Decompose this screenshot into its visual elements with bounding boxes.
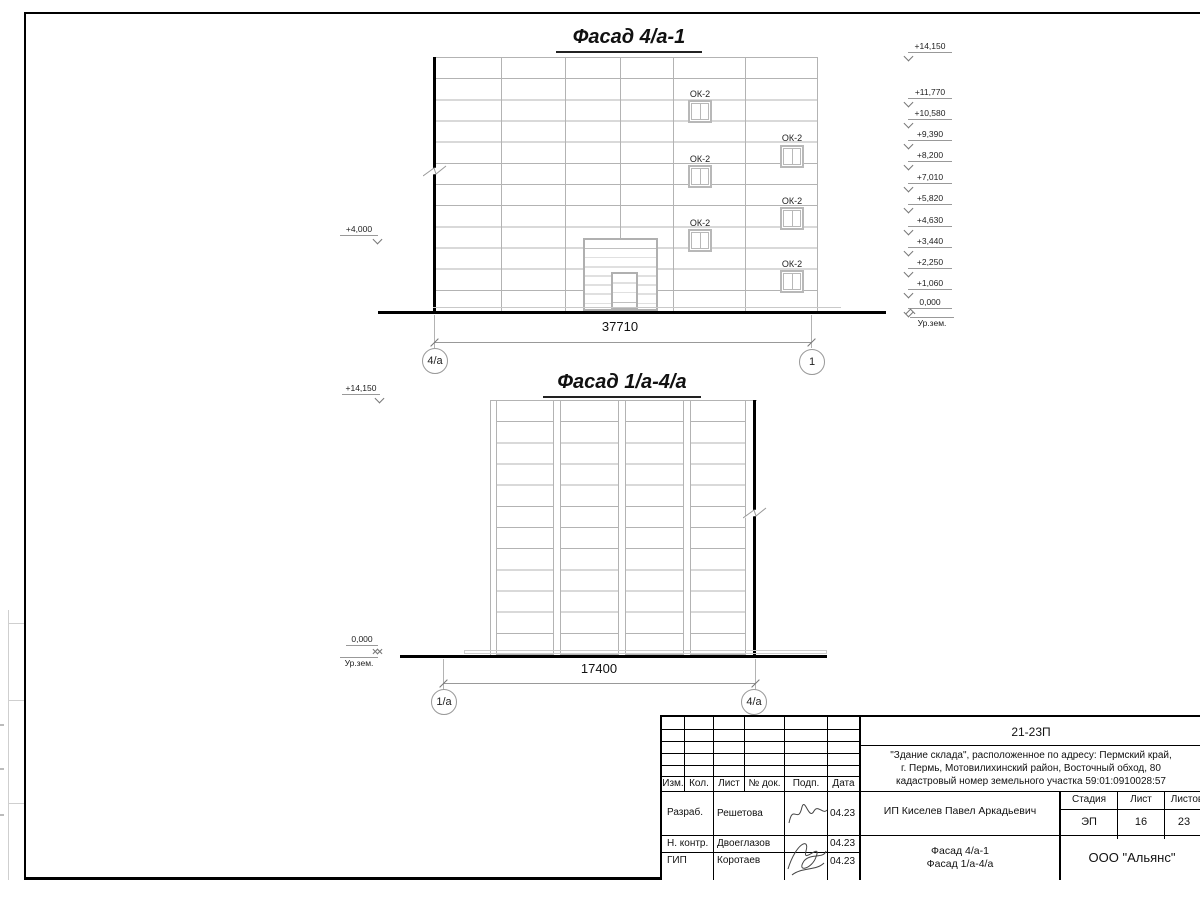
elevation-value: +7,010 (917, 172, 943, 182)
window-ok2 (688, 100, 712, 123)
tb-client: ИП Киселев Павел Аркадьевич (861, 805, 1059, 817)
elevation-tick-icon (904, 140, 914, 150)
wicket-door (611, 272, 638, 309)
dimension-text: 17400 (549, 661, 649, 676)
elevation-mark: 0,000 (346, 634, 378, 646)
elevation-tick-icon (904, 226, 914, 236)
window-mullion (700, 168, 701, 185)
window-mullion (700, 103, 701, 120)
elevation-value: Ур.зем. (918, 318, 947, 328)
elevation-mark: +9,390 (908, 129, 952, 141)
margin-line (8, 700, 24, 701)
window-label: ОК-2 (778, 259, 806, 269)
elevation-mark: +14,150 (908, 41, 952, 53)
extension-line (755, 659, 756, 690)
signature-icon (782, 833, 830, 879)
margin-mark (0, 724, 4, 726)
tb-line (662, 765, 859, 766)
elevation-tick-icon (904, 52, 914, 62)
break-mark-icon (743, 506, 767, 522)
window-label: ОК-2 (778, 196, 806, 206)
elevation-value: +11,770 (915, 87, 945, 97)
facade2-title: Фасад 1/а-4/а (543, 371, 701, 398)
tb-sheet-label: Лист (1118, 794, 1164, 805)
elevation-tick-icon (904, 204, 914, 214)
elevation-mark: +11,770 (908, 87, 952, 99)
tb-sheets-label: Листов (1165, 794, 1200, 805)
axis-bubble: 4/а (422, 348, 448, 374)
tb-description-line: "Здание склада", расположенное по адресу… (862, 750, 1200, 761)
tb-col-kol: Кол. (685, 778, 713, 789)
elevation-tick-icon (904, 98, 914, 108)
window-mullion (792, 273, 793, 290)
tb-role: Н. контр. (667, 838, 708, 849)
elevation-mark: +5,820 (908, 193, 952, 205)
facade1-column-line (501, 58, 502, 312)
facade1-ground-line (378, 311, 886, 314)
margin-line (8, 623, 24, 624)
tb-name: Решетова (717, 808, 763, 819)
elevation-value: +14,150 (346, 383, 377, 393)
facade2-pilaster (490, 401, 497, 656)
elevation-tick-icon (904, 247, 914, 257)
facade1-plinth-line (433, 307, 841, 308)
window-label: ОК-2 (686, 89, 714, 99)
tb-name: Двоеглазов (717, 838, 770, 849)
window-label: ОК-2 (778, 133, 806, 143)
tb-col-podp: Подп. (785, 778, 827, 789)
axis-bubble: 1/а (431, 689, 457, 715)
title-block: Изм. Кол. Лист № док. Подп. Дата Разраб.… (660, 715, 1200, 880)
tb-stage-label: Стадия (1061, 794, 1117, 805)
margin-mark (0, 768, 4, 770)
tb-sheet-value: 16 (1118, 816, 1164, 828)
elevation-tick-icon (904, 161, 914, 171)
margin-mark (0, 814, 4, 816)
tb-role: Разраб. (667, 807, 703, 818)
tb-col-list: Лист (714, 778, 744, 789)
tb-stage-value: ЭП (1061, 816, 1117, 828)
tb-doc-name-line: Фасад 1/а-4/а (861, 858, 1059, 870)
facade1-title: Фасад 4/а-1 (556, 26, 702, 53)
elevation-mark: +10,580 (908, 108, 952, 120)
elevation-value: +5,820 (917, 193, 943, 203)
extension-line (443, 659, 444, 690)
tb-date: 04.23 (830, 838, 855, 849)
elevation-value: 0,000 (351, 634, 372, 644)
facade2-plinth (464, 650, 827, 654)
tb-description-line: г. Пермь, Мотовилихинский район, Восточн… (862, 763, 1200, 774)
tb-line (662, 729, 859, 730)
tb-col-izm: Изм. (662, 778, 684, 789)
tb-company: ООО "Альянс" (1061, 850, 1200, 865)
facade1-column-line (565, 58, 566, 312)
elevation-mark: +2,250 (908, 257, 952, 269)
frame-top-border (24, 12, 1200, 14)
elevation-mark: +8,200 (908, 150, 952, 162)
elevation-mark: +7,010 (908, 172, 952, 184)
signature-icon (785, 795, 829, 831)
facade2-pilaster (683, 401, 691, 656)
facade1-column-line (745, 58, 746, 312)
tb-date: 04.23 (830, 808, 855, 819)
window-label: ОК-2 (686, 218, 714, 228)
break-mark-icon (423, 164, 447, 180)
elevation-tick-icon (904, 183, 914, 193)
elevation-value: 0,000 (919, 297, 940, 307)
tb-line (1059, 809, 1200, 810)
ground-level-mark: Ур.зем. (910, 317, 954, 329)
window-mullion (792, 210, 793, 227)
tb-col-data: Дата (828, 778, 859, 789)
elevation-mark: 0,000 (908, 297, 952, 309)
tb-line (662, 835, 1200, 836)
facade1-edge-line (433, 57, 436, 311)
facade2-ground-line (400, 655, 827, 658)
tb-col-ndok: № док. (745, 778, 784, 789)
tb-line (859, 745, 1200, 746)
elevation-value: +3,440 (917, 236, 943, 246)
facade2-edge-line (753, 400, 756, 655)
elevation-value: +1,060 (917, 278, 943, 288)
window-ok2 (688, 165, 712, 188)
window-mullion (700, 232, 701, 249)
margin-line (8, 610, 9, 880)
elevation-mark: +4,000 (340, 224, 378, 236)
window-ok2 (780, 270, 804, 293)
elevation-value: +10,580 (915, 108, 946, 118)
tb-doc-name-line: Фасад 4/а-1 (861, 845, 1059, 857)
axis-bubble: 4/а (741, 689, 767, 715)
elevation-mark: +4,630 (908, 215, 952, 227)
tb-line (662, 776, 859, 777)
tb-sheets-value: 23 (1165, 816, 1200, 828)
axis-bubble: 1 (799, 349, 825, 375)
elevation-value: +9,390 (917, 129, 943, 139)
facade1-column-line (673, 58, 674, 312)
tb-date: 04.23 (830, 856, 855, 867)
elevation-value: +2,250 (917, 257, 943, 267)
dimension-line (434, 342, 811, 343)
facade2-pilaster (553, 401, 561, 656)
window-label: ОК-2 (686, 154, 714, 164)
tb-name: Коротаев (717, 855, 760, 866)
facade2-pilaster (618, 401, 626, 656)
tb-line (713, 717, 714, 880)
elevation-value: +4,630 (917, 215, 943, 225)
elevation-mark: +14,150 (342, 383, 380, 395)
elevation-value: +14,150 (915, 41, 946, 51)
elevation-tick-icon (904, 268, 914, 278)
tb-role: ГИП (667, 855, 687, 866)
ground-level-mark: Ур.зем. (340, 657, 378, 669)
elevation-value: Ур.зем. (345, 658, 374, 668)
facade2-pilaster (745, 401, 758, 656)
window-ok2 (688, 229, 712, 252)
elevation-value: +8,200 (917, 150, 943, 160)
margin-line (8, 803, 24, 804)
tb-line (662, 753, 859, 754)
dimension-line (443, 683, 755, 684)
tb-line (662, 741, 859, 742)
facade2-building (490, 400, 757, 656)
elevation-value: +4,000 (346, 224, 372, 234)
elevation-tick-icon (373, 235, 383, 245)
elevation-tick-icon (904, 119, 914, 129)
tb-project-code: 21-23П (859, 725, 1200, 739)
sectional-gate (583, 238, 658, 311)
window-ok2 (780, 207, 804, 230)
frame-left-border (24, 12, 26, 880)
tb-description-line: кадастровый номер земельного участка 59:… (862, 776, 1200, 787)
tb-line (662, 791, 1200, 792)
window-ok2 (780, 145, 804, 168)
elevation-mark: +1,060 (908, 278, 952, 290)
drawing-sheet: Фасад 4/а-1 ОК-2 ОК-2 ОК-2 ОК-2 ОК-2 ОК-… (0, 0, 1200, 900)
dimension-text: 37710 (570, 319, 670, 334)
window-mullion (792, 148, 793, 165)
elevation-tick-icon (375, 394, 385, 404)
elevation-mark: +3,440 (908, 236, 952, 248)
